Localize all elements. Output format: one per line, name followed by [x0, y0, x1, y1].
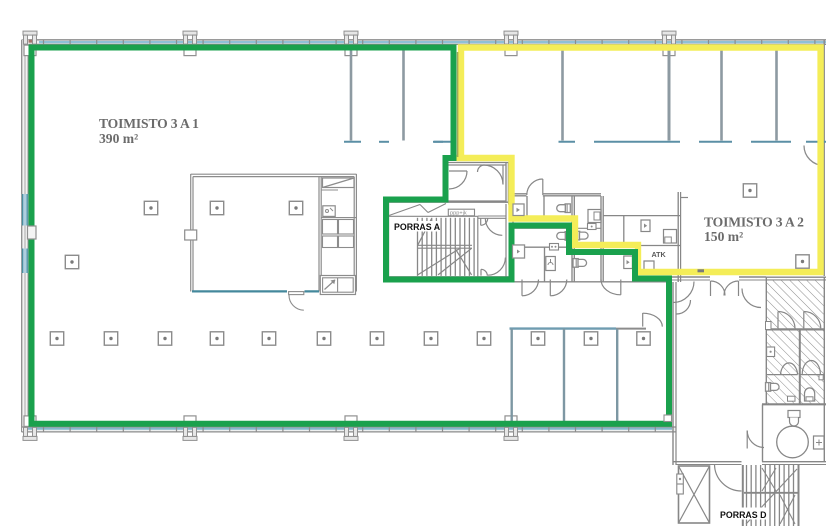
svg-text:TOIMISTO 3 A 1: TOIMISTO 3 A 1	[99, 116, 199, 131]
svg-text:TOIMISTO 3 A 2: TOIMISTO 3 A 2	[704, 215, 804, 230]
svg-text:390 m²: 390 m²	[99, 131, 138, 146]
svg-text:PORRAS A: PORRAS A	[394, 222, 441, 232]
svg-text:PORRAS D: PORRAS D	[720, 510, 766, 520]
svg-text:ATK: ATK	[652, 250, 667, 259]
svg-text:150 m²: 150 m²	[704, 229, 743, 244]
